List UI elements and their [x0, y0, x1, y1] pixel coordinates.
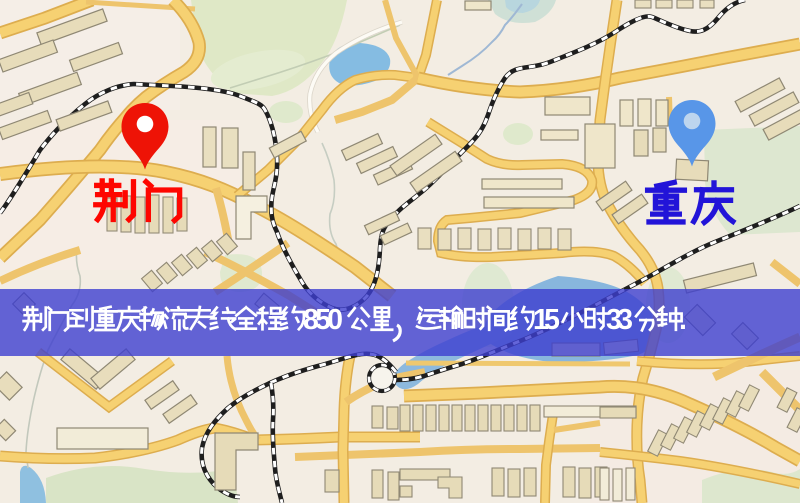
svg-text:850: 850 — [303, 304, 343, 336]
svg-text:33: 33 — [606, 304, 633, 336]
svg-text:15: 15 — [533, 304, 560, 336]
svg-text:.: . — [679, 304, 687, 336]
